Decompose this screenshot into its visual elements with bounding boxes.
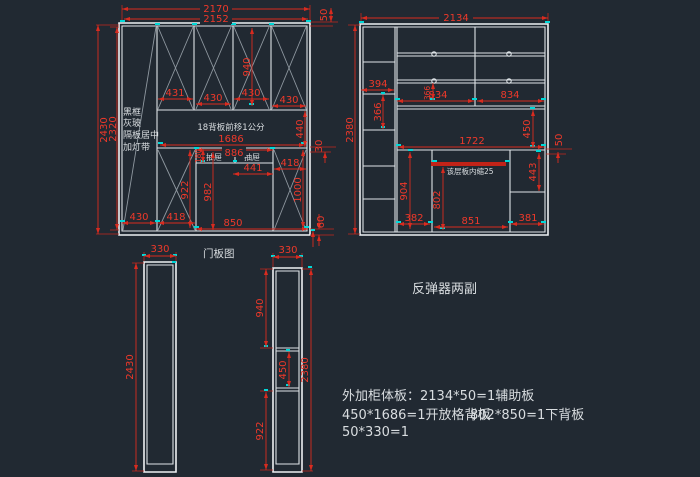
rebound-note: 反弹器两副: [412, 282, 477, 297]
cad-canvas: 2170 2152 50 2430 2320 431 430 430 430 9…: [0, 0, 700, 477]
dim-panel-right-450: 450: [278, 360, 289, 379]
cad-drawing-viewport: 2170 2152 50 2430 2320 431 430 430 430 9…: [0, 0, 700, 477]
dim-60: 60: [316, 216, 327, 229]
dim-2152: 2152: [203, 14, 228, 25]
dim-2134: 2134: [443, 13, 468, 24]
dim-381: 381: [518, 213, 537, 224]
note-back-panel: 18背板前移1公分: [197, 122, 265, 133]
note-line-2b: 802*850=1下背板: [470, 408, 584, 423]
dim-2320: 2320: [108, 116, 119, 141]
door-panel-diagram-label: 门板图: [203, 247, 235, 260]
dim-418-bottom: 418: [166, 212, 185, 223]
dim-922: 922: [180, 180, 191, 199]
dim-30: 30: [314, 140, 325, 153]
door-panel-right: 330 940 450 922 2380: [255, 245, 313, 472]
dim-394: 394: [368, 79, 387, 90]
dim-851: 851: [461, 216, 480, 227]
dim-441: 441: [243, 163, 262, 174]
dim-366-left: 366: [373, 102, 384, 121]
note-line-1: 外加柜体板：2134*50=1辅助板: [342, 389, 534, 404]
right-cabinet-elevation: 2134 2380 394 366 834 834 366 1722 450 5…: [345, 13, 572, 235]
dim-430-bottom: 430: [129, 212, 148, 223]
highlighted-shelf: [431, 162, 506, 166]
dim-940: 940: [242, 57, 253, 76]
dim-180: 180: [194, 149, 203, 164]
dim-450: 450: [522, 119, 533, 138]
dim-panel-left-330: 330: [150, 244, 169, 255]
annotations: 门板图 反弹器两副 外加柜体板：2134*50=1辅助板 450*1686=1开…: [203, 247, 584, 440]
dim-panel-right-922: 922: [255, 421, 266, 440]
side-note-4: 加灯带: [123, 142, 150, 153]
dim-panel-right-940: 940: [255, 298, 266, 317]
side-note-1: 黑框: [123, 106, 141, 118]
dim-panel-left-2430: 2430: [125, 354, 136, 379]
door-panel-left-inner: [147, 265, 173, 464]
note-line-2a: 450*1686=1开放格背板: [342, 407, 491, 423]
dim-366-shelf: 366: [423, 86, 432, 101]
door-panel-left-extensions: [132, 252, 176, 471]
dim-50-right: 50: [554, 134, 565, 147]
dim-1722: 1722: [459, 136, 484, 147]
note-line-3: 50*330=1: [342, 425, 409, 440]
door-panel-left-outline: [144, 262, 176, 472]
dim-door-1: 431: [165, 88, 184, 99]
note-shelf-inset: 该层板内缩25: [446, 166, 493, 176]
dim-1000: 1000: [293, 177, 304, 202]
door-panel-left: 330 2430: [125, 244, 177, 472]
dim-440: 440: [295, 119, 306, 138]
dim-443: 443: [528, 162, 539, 181]
drawer-label-left: 抽屉: [206, 152, 222, 162]
dim-802: 802: [432, 190, 443, 209]
dim-door-3: 430: [241, 88, 260, 99]
dim-904: 904: [399, 181, 410, 200]
dim-382: 382: [404, 213, 423, 224]
dim-50-top: 50: [319, 9, 330, 22]
dim-834-right: 834: [500, 90, 519, 101]
dim-1686: 1686: [218, 134, 243, 145]
dim-panel-right-330: 330: [278, 245, 297, 256]
dim-886: 886: [224, 148, 243, 159]
side-note-2: 灰玻: [123, 117, 141, 129]
drawer-label-right: 抽屉: [244, 152, 260, 162]
dim-panel-right-2380: 2380: [300, 357, 311, 382]
side-note-3: 隔板居中: [123, 129, 159, 141]
dim-2380: 2380: [345, 117, 356, 142]
right-cabinet-partitions: [363, 27, 545, 232]
left-cabinet-elevation: 2170 2152 50 2430 2320 431 430 430 430 9…: [96, 3, 338, 247]
dim-982: 982: [203, 182, 214, 201]
dim-door-2: 430: [203, 93, 222, 104]
right-extension-lines: [348, 13, 572, 234]
dim-418-mid: 418: [280, 158, 299, 169]
dim-850: 850: [223, 218, 242, 229]
dim-door-4: 430: [279, 95, 298, 106]
